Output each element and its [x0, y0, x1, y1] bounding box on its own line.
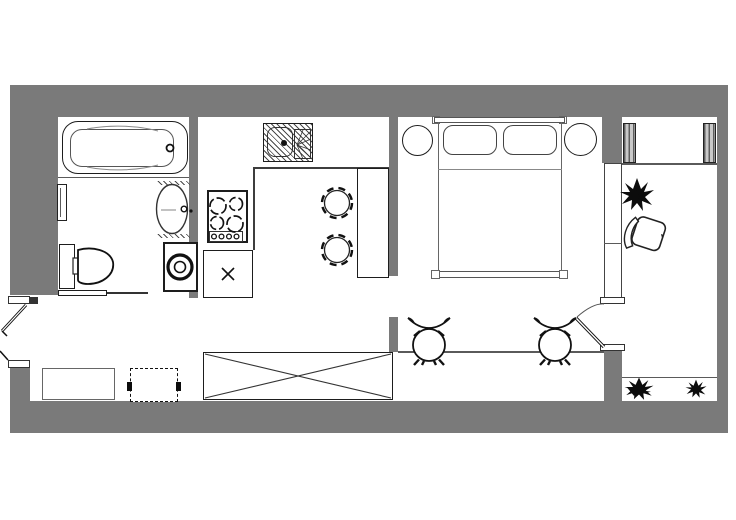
window-ledge-line [622, 377, 717, 378]
nightstand-left [402, 125, 433, 156]
entry-door-hinge-block [29, 297, 38, 304]
dashed-cabinet [130, 368, 178, 402]
bar-stool-1 [408, 318, 450, 365]
entry-door-leaf-2 [0, 351, 8, 360]
bar-stool-2 [534, 318, 576, 365]
mattress-fold-line [438, 169, 562, 170]
kitchen-table [357, 168, 389, 278]
kitchen-sink-drainer [294, 129, 311, 159]
wall-bedroom-divider-top [602, 117, 622, 163]
entry-door-jamb-top [8, 296, 30, 304]
sliding-door-track [107, 292, 148, 294]
pillow-left [443, 125, 497, 155]
wall-bedroom-divider-bottom [604, 348, 622, 401]
wall-top [10, 85, 728, 117]
entry-door-jamb-bottom [8, 360, 30, 368]
dressing-door-jamb-top [600, 297, 625, 304]
kitchen-chair-1 [322, 188, 352, 218]
dressing-niche-line [622, 163, 717, 165]
faucet-icon [181, 206, 187, 212]
wall-kitchen-partition-stub [389, 317, 398, 352]
bathtub-inner [70, 129, 174, 167]
dashed-cabinet-tick-right [176, 382, 181, 391]
bed-foot-post-left [431, 270, 440, 279]
toilet-bowl [73, 249, 113, 285]
bathroom-sliding-door [58, 290, 107, 296]
plant-window-large-icon [625, 377, 654, 399]
vanity-niche-stub-top [157, 181, 190, 185]
dressing-door-jamb-bottom [600, 344, 625, 351]
window-bar-counter-line [398, 351, 604, 353]
wall-bottom [10, 401, 728, 433]
bathtub-platform-line [58, 177, 189, 178]
plant-window-small-icon [685, 380, 706, 398]
towel-rail [57, 184, 67, 221]
window-bench [42, 368, 115, 400]
entry-door-leaf [2, 305, 26, 336]
plant-dressing-icon [620, 178, 654, 211]
floor-plan [0, 0, 736, 520]
wardrobe-x [203, 352, 393, 400]
cooktop-knob-strip [209, 231, 243, 242]
wall-left-block [10, 85, 58, 295]
wardrobe-panel-right [703, 123, 716, 163]
toilet-cistern [59, 244, 75, 289]
washbasin [157, 185, 193, 234]
vanity-niche-stub-bottom [157, 234, 190, 238]
wall-kitchen-partition [389, 117, 398, 276]
kitchen-counter-side-line [253, 167, 255, 250]
partition-cabinet [604, 163, 622, 298]
kitchen-chair-2 [322, 235, 352, 265]
base-cabinet-x [203, 250, 253, 298]
armchair [621, 213, 667, 258]
washing-machine [163, 242, 198, 292]
wall-entry-pier [10, 367, 30, 401]
towel-rail-line [60, 188, 61, 217]
partition-cabinet-divider-line [604, 243, 622, 244]
dashed-cabinet-tick-left [127, 382, 132, 391]
wall-right [717, 85, 728, 433]
bed-foot-post-right [559, 270, 568, 279]
bed-foot-bar [434, 271, 565, 278]
pillow-right [503, 125, 557, 155]
wardrobe-panel-left [623, 123, 636, 163]
nightstand-right [564, 123, 597, 156]
dressing-door [576, 304, 604, 347]
kitchen-sink-basin [267, 127, 293, 157]
